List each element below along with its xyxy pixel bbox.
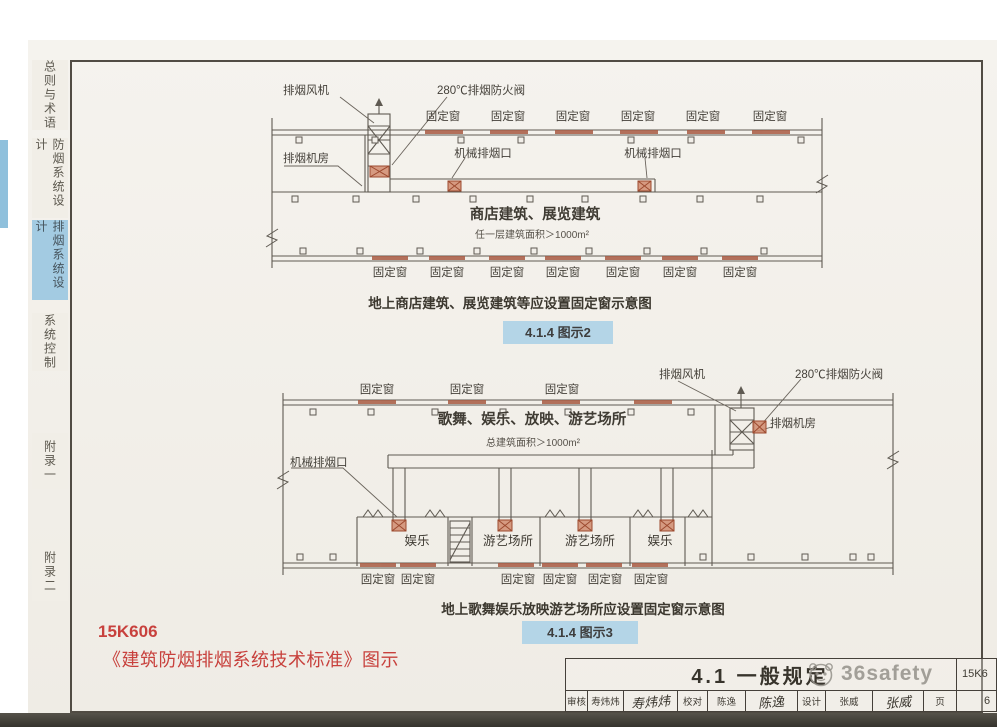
fixed-window-label: 固定窗 [634, 571, 669, 587]
fixed-window-label: 固定窗 [545, 381, 580, 397]
watermark: 36safety [806, 656, 986, 692]
fixed-window-label: 固定窗 [501, 571, 536, 587]
diagram1-caption: 地上商店建筑、展览建筑等应设置固定窗示意图 [368, 292, 652, 312]
proof-signature: 陈逸 [746, 691, 798, 711]
diagram2-caption: 地上歌舞娱乐放映游艺场所应设置固定窗示意图 [441, 598, 725, 618]
fan-room-label: 排烟机房 [283, 150, 329, 166]
watermark-text: 36safety [841, 662, 933, 686]
fixed-window-label: 固定窗 [426, 108, 461, 124]
exhaust-fan-label: 排烟风机 [283, 82, 329, 98]
diagram2-area-note: 总建筑面积＞1000m² [486, 434, 580, 449]
proof-label-cell: 校对 [678, 691, 708, 711]
fan-room-label: 排烟机房 [770, 415, 816, 431]
signature-text: 张威 [884, 690, 912, 711]
fixed-window-label: 固定窗 [621, 108, 656, 124]
sidebar-tab-smoke-prevention: 防烟系统设计 [32, 138, 68, 218]
fixed-window-label: 固定窗 [490, 264, 525, 280]
signature-text: 寿炜炜 [630, 690, 671, 712]
room-label-entertainment: 娱乐 [647, 530, 672, 549]
fixed-window-label: 固定窗 [588, 571, 623, 587]
fixed-window-label: 固定窗 [556, 108, 591, 124]
fixed-window-label: 固定窗 [606, 264, 641, 280]
fire-damper-label: 280℃排烟防火阀 [795, 366, 883, 382]
fixed-window-label: 固定窗 [723, 264, 758, 280]
page-label-cell: 页 [924, 691, 956, 711]
left-edge-blue-strip [0, 140, 8, 228]
room-label-amusement: 游艺场所 [565, 530, 615, 549]
fixed-window-label: 固定窗 [686, 108, 721, 124]
fixed-window-label: 固定窗 [361, 571, 396, 587]
fixed-window-label: 固定窗 [543, 571, 578, 587]
design-signature: 张威 [873, 691, 924, 711]
fixed-window-label: 固定窗 [373, 264, 408, 280]
scanned-standard-page: 总则与术语 防烟系统设计 排烟系统设计 系统控制 附录一 附录二 [0, 0, 997, 727]
fixed-window-label: 固定窗 [546, 264, 581, 280]
diagram2-building-title: 歌舞、娱乐、放映、游艺场所 [438, 408, 627, 429]
design-label-cell: 设计 [798, 691, 826, 711]
review-name-cell: 寿炜炜 [588, 691, 624, 711]
sidebar-tab-smoke-exhaust-active: 排烟系统设计 [32, 220, 68, 300]
mech-outlet-label: 机械排烟口 [290, 454, 348, 470]
diagram1-figure-tag: 4.1.4 图示2 [503, 321, 613, 344]
diagram1-building-title: 商店建筑、展览建筑 [470, 203, 601, 224]
photo-bottom-edge [0, 713, 997, 727]
atlas-doc-title: 《建筑防烟排烟系统技术标准》图示 [103, 646, 399, 672]
review-signature: 寿炜炜 [624, 691, 678, 711]
room-label-amusement: 游艺场所 [483, 530, 533, 549]
panda-face-icon [806, 659, 836, 689]
exhaust-fan-label: 排烟风机 [659, 366, 705, 382]
diagram2-figure-tag: 4.1.4 图示3 [522, 621, 638, 644]
fixed-window-label: 固定窗 [491, 108, 526, 124]
mech-outlet-label: 机械排烟口 [454, 145, 512, 161]
sidebar-tab-appendix-1: 附录一 [32, 433, 68, 489]
room-label-entertainment: 娱乐 [404, 530, 429, 549]
proof-name-cell: 陈逸 [708, 691, 746, 711]
fixed-window-label: 固定窗 [401, 571, 436, 587]
fixed-window-label: 固定窗 [753, 108, 788, 124]
fire-damper-label: 280℃排烟防火阀 [437, 82, 525, 98]
review-label-cell: 审核 [566, 691, 588, 711]
signature-text: 陈逸 [758, 690, 786, 711]
design-name-cell: 张威 [826, 691, 873, 711]
diagram1-area-note: 任一层建筑面积＞1000m² [475, 226, 589, 241]
fixed-window-label: 固定窗 [663, 264, 698, 280]
sidebar-tab-system-control: 系统控制 [32, 313, 68, 371]
sidebar-tab-general-terms: 总则与术语 [32, 60, 68, 130]
fixed-window-label: 固定窗 [360, 381, 395, 397]
atlas-code: 15K606 [98, 622, 158, 642]
mech-outlet-label: 机械排烟口 [624, 145, 682, 161]
page-number-cell: 6 [958, 691, 997, 711]
fixed-window-label: 固定窗 [450, 381, 485, 397]
fixed-window-label: 固定窗 [430, 264, 465, 280]
sidebar-tab-appendix-2: 附录二 [32, 543, 68, 601]
